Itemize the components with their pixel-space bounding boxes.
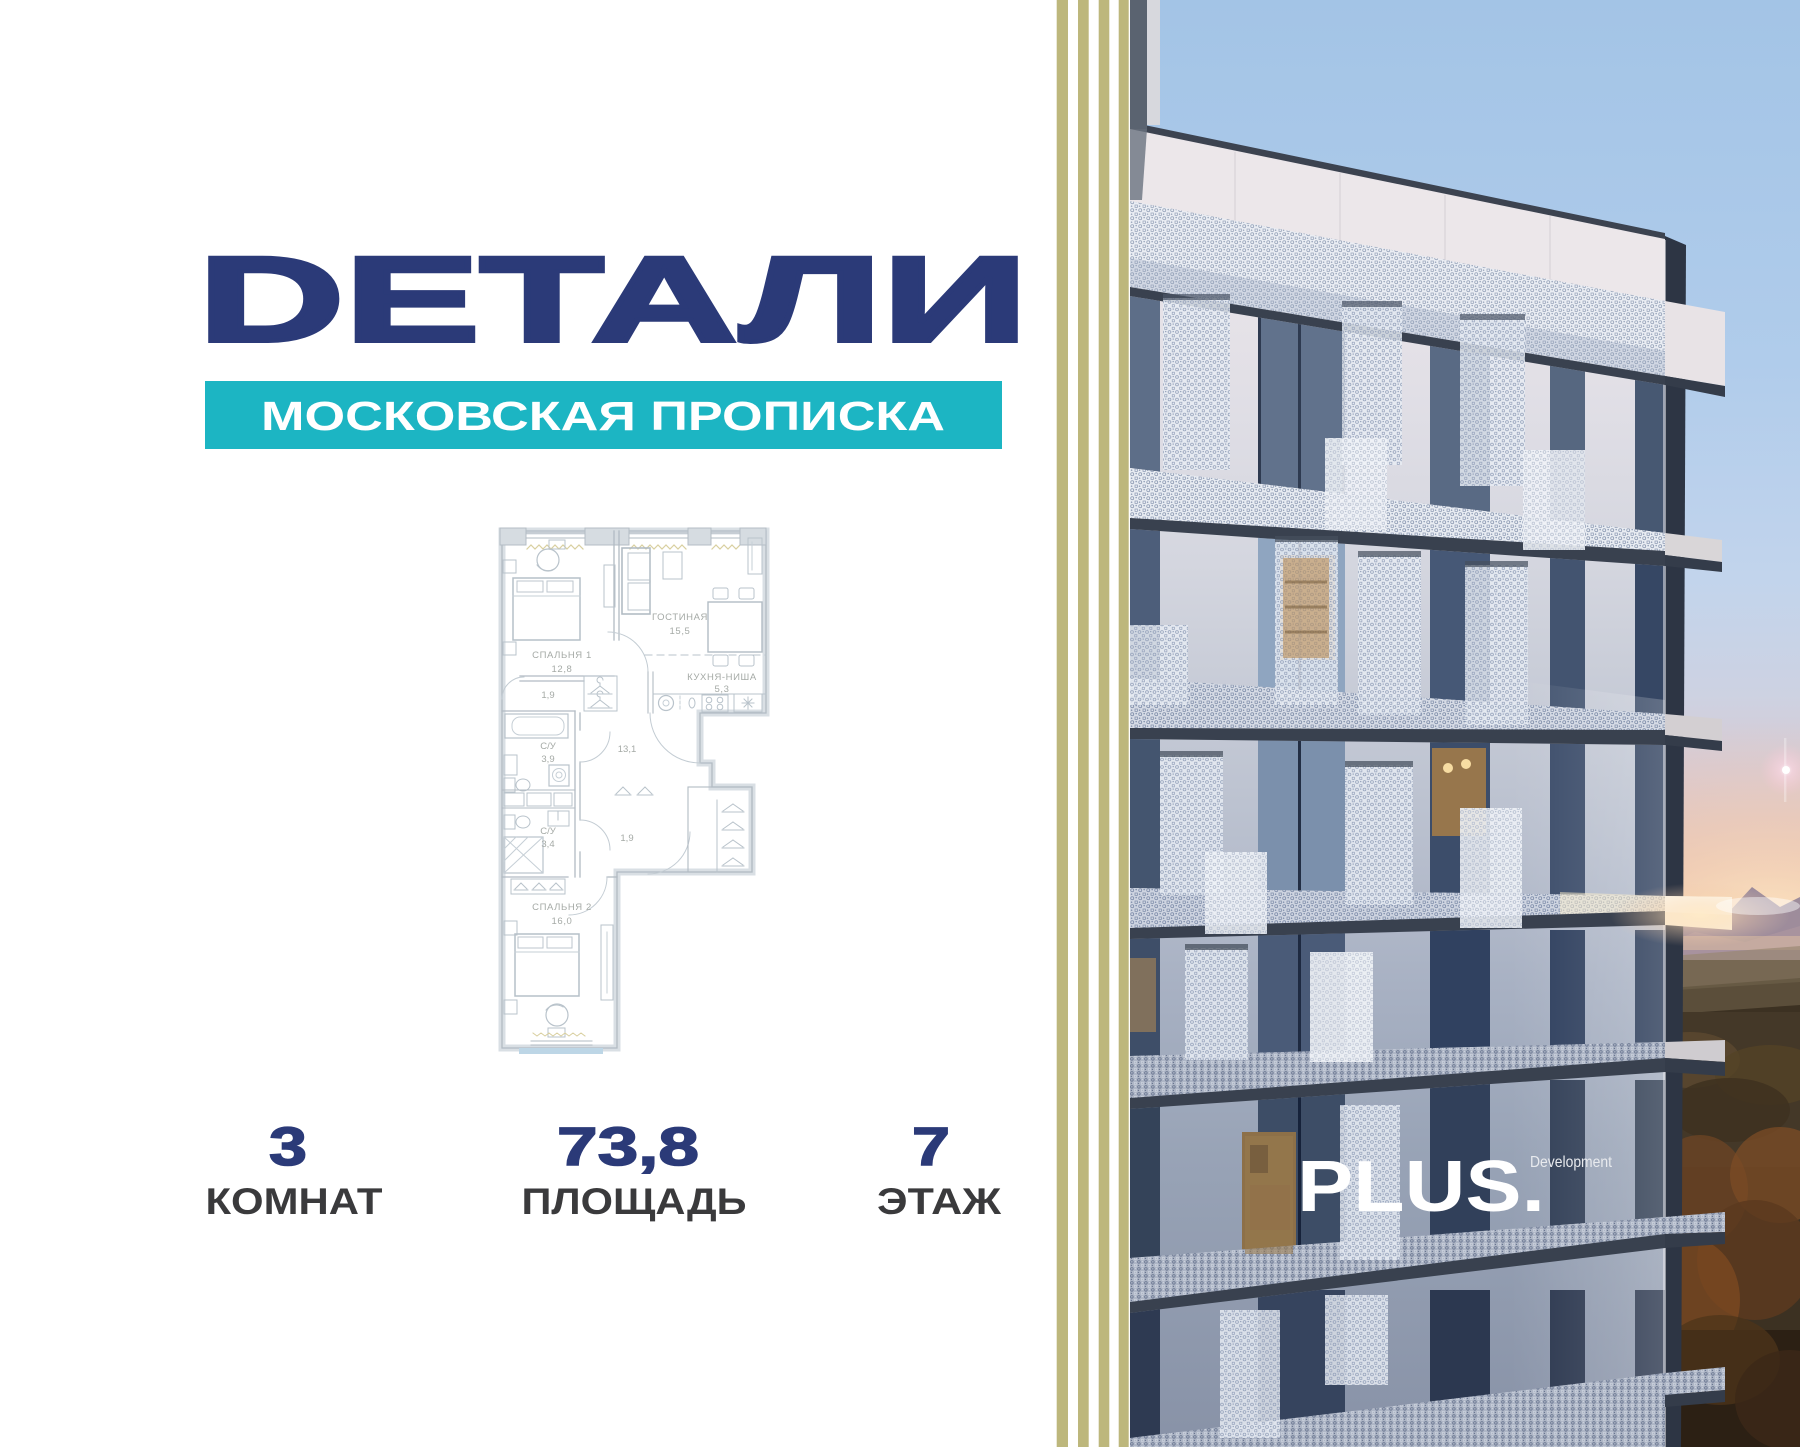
svg-text:3: 3 bbox=[269, 1117, 307, 1177]
svg-text:КОМНАТ: КОМНАТ bbox=[206, 1181, 383, 1222]
svg-text:1,9: 1,9 bbox=[541, 690, 554, 701]
svg-text:15,5: 15,5 bbox=[670, 626, 691, 637]
svg-text:СПАЛЬНЯ 2: СПАЛЬНЯ 2 bbox=[532, 902, 592, 913]
svg-text:МОСКОВСКАЯ ПРОПИСКА: МОСКОВСКАЯ ПРОПИСКА bbox=[261, 393, 945, 439]
svg-text:1,9: 1,9 bbox=[620, 833, 633, 844]
svg-text:3,4: 3,4 bbox=[541, 839, 554, 850]
svg-text:16,0: 16,0 bbox=[552, 916, 573, 927]
svg-text:5,3: 5,3 bbox=[714, 684, 729, 695]
svg-text:7: 7 bbox=[912, 1117, 950, 1177]
svg-text:PLUS.: PLUS. bbox=[1297, 1147, 1545, 1227]
svg-text:С/У: С/У bbox=[540, 826, 557, 837]
svg-text:ГОСТИНАЯ: ГОСТИНАЯ bbox=[652, 612, 708, 623]
svg-text:3,9: 3,9 bbox=[541, 754, 554, 765]
svg-text:12,8: 12,8 bbox=[552, 664, 573, 675]
svg-text:13,1: 13,1 bbox=[618, 744, 637, 755]
svg-text:ЭТАЖ: ЭТАЖ bbox=[877, 1181, 1002, 1222]
svg-text:СПАЛЬНЯ 1: СПАЛЬНЯ 1 bbox=[532, 650, 592, 661]
svg-text:73,8: 73,8 bbox=[557, 1117, 699, 1177]
svg-text:ПЛОЩАДЬ: ПЛОЩАДЬ bbox=[522, 1181, 747, 1222]
svg-text:DЕТАЛИ: DЕТАЛИ bbox=[198, 231, 1028, 367]
svg-text:Development: Development bbox=[1530, 1154, 1612, 1171]
svg-text:С/У: С/У bbox=[540, 741, 557, 752]
svg-text:КУХНЯ-НИША: КУХНЯ-НИША bbox=[687, 672, 757, 683]
